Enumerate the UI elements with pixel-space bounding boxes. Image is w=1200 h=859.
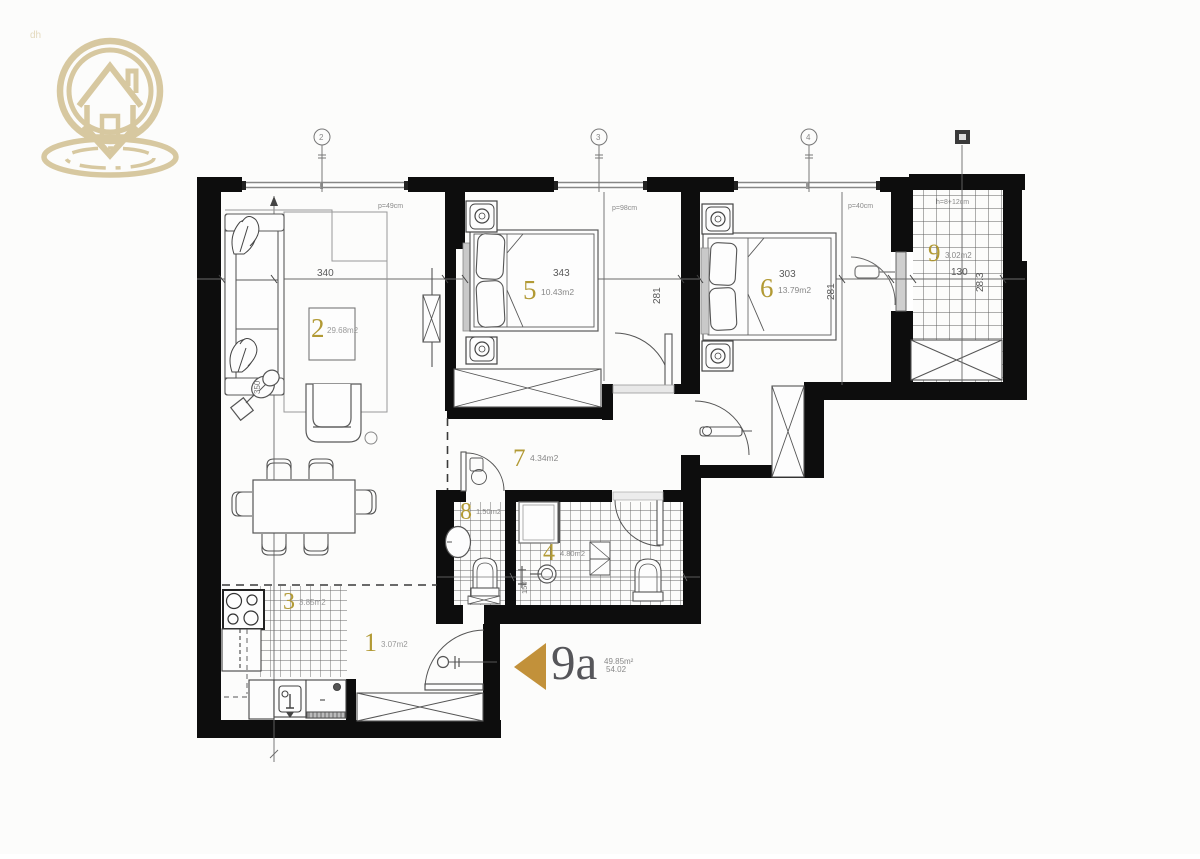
- svg-text:9: 9: [928, 240, 941, 267]
- svg-text:4.34m2: 4.34m2: [530, 453, 559, 463]
- svg-text:150: 150: [520, 581, 529, 594]
- svg-text:5: 5: [523, 275, 537, 305]
- svg-text:4: 4: [806, 133, 811, 142]
- svg-text:281: 281: [652, 287, 663, 304]
- svg-text:3: 3: [596, 133, 601, 142]
- svg-text:p=40cm: p=40cm: [848, 203, 873, 210]
- svg-text:130: 130: [951, 267, 968, 278]
- svg-text:6: 6: [760, 273, 774, 303]
- svg-text:13.79m2: 13.79m2: [778, 285, 811, 295]
- svg-text:54.02: 54.02: [606, 665, 627, 674]
- svg-text:7: 7: [513, 445, 526, 472]
- svg-text:350: 350: [253, 380, 262, 394]
- svg-text:p=49cm: p=49cm: [378, 203, 403, 210]
- svg-text:2: 2: [311, 313, 325, 343]
- svg-text:303: 303: [779, 269, 796, 280]
- svg-text:1: 1: [364, 628, 377, 657]
- svg-text:3.85m2: 3.85m2: [299, 598, 326, 607]
- svg-text:p=98cm: p=98cm: [612, 205, 637, 212]
- svg-text:10.43m2: 10.43m2: [541, 287, 574, 297]
- svg-text:3: 3: [283, 589, 295, 615]
- svg-text:9a: 9a: [551, 635, 598, 690]
- svg-text:3.02m2: 3.02m2: [945, 251, 972, 260]
- svg-text:281: 281: [826, 283, 837, 300]
- svg-text:4.80m2: 4.80m2: [560, 549, 585, 558]
- svg-text:h=8+12cm: h=8+12cm: [936, 199, 969, 206]
- svg-text:1.50m2: 1.50m2: [476, 507, 501, 516]
- svg-text:4: 4: [543, 540, 555, 566]
- svg-text:2: 2: [319, 133, 324, 142]
- svg-text:28.3: 28.3: [975, 272, 986, 292]
- svg-text:3.07m2: 3.07m2: [381, 640, 408, 649]
- svg-text:8: 8: [460, 499, 472, 525]
- svg-text:343: 343: [553, 268, 570, 279]
- svg-text:340: 340: [317, 268, 334, 279]
- svg-text:29.68m2: 29.68m2: [327, 326, 359, 335]
- svg-text:dh: dh: [30, 30, 41, 41]
